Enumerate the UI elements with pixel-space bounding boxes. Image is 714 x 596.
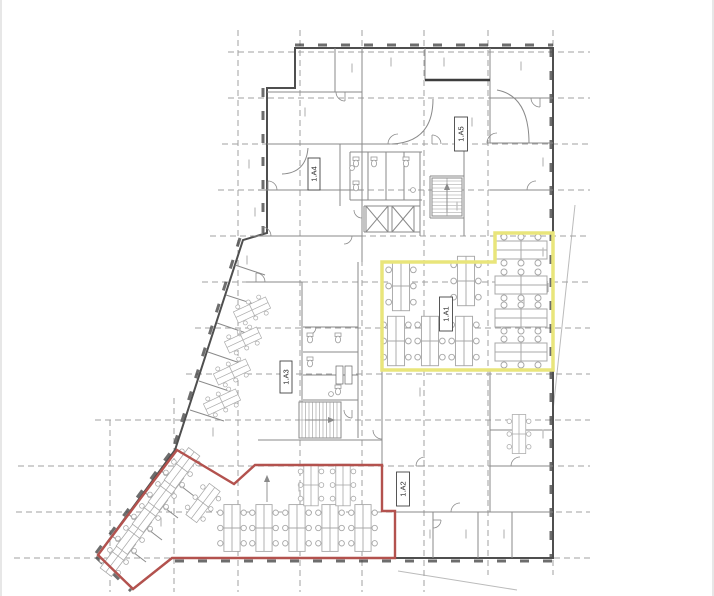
room-name-mark [254, 208, 255, 217]
room-name-mark [471, 118, 472, 127]
area-label-1a5: 1.A5 [455, 117, 468, 151]
area-label-1a4: 1.A4 [308, 158, 320, 190]
wc-fixture [307, 336, 312, 343]
chair [349, 510, 354, 515]
chair [518, 269, 524, 275]
chair [339, 525, 344, 530]
chair [501, 234, 507, 240]
desk-cluster [495, 269, 547, 301]
desk-cluster [218, 505, 247, 552]
chair [535, 269, 541, 275]
desk-cluster [298, 464, 324, 506]
room-name-mark [212, 428, 213, 437]
chair [349, 525, 354, 530]
room-name-mark [456, 202, 457, 211]
chair [501, 328, 507, 334]
wc-fixture [403, 160, 408, 167]
chair [415, 338, 421, 344]
chair [273, 541, 278, 546]
chair [319, 496, 324, 501]
door-tag-box [336, 366, 343, 384]
room-name-mark [298, 483, 299, 492]
desk-cluster [507, 415, 531, 454]
chair [330, 483, 335, 488]
chair [339, 510, 344, 515]
desk-cluster [283, 505, 312, 552]
elevator-shaft [392, 206, 414, 232]
chair [406, 322, 412, 328]
chair [474, 354, 480, 360]
chair [507, 432, 512, 437]
room-name-mark [304, 108, 305, 117]
chair [406, 354, 412, 360]
chair [535, 295, 541, 301]
room-name-mark [419, 388, 420, 397]
chair [241, 541, 246, 546]
chair [527, 432, 532, 437]
chair [501, 362, 507, 368]
chair [339, 541, 344, 546]
chair [501, 336, 507, 342]
chair [372, 541, 377, 546]
chair [507, 445, 512, 450]
chair [283, 510, 288, 515]
chair [476, 278, 482, 284]
chair [518, 234, 524, 240]
chair [415, 354, 421, 360]
chair [501, 295, 507, 301]
chair [372, 510, 377, 515]
wc-fixture [335, 336, 340, 343]
area-label-1a2: 1.A2 [397, 472, 410, 506]
chair [440, 338, 446, 344]
chair [283, 541, 288, 546]
room-name-mark [542, 158, 543, 167]
room-name-mark [248, 160, 249, 169]
chair [351, 483, 356, 488]
chair [535, 302, 541, 308]
chair [218, 525, 223, 530]
area-label-text: 1.A2 [399, 481, 408, 496]
chair [527, 419, 532, 424]
chair [501, 269, 507, 275]
chair [518, 336, 524, 342]
chair [351, 469, 356, 474]
room-name-mark [503, 530, 504, 539]
chair [319, 483, 324, 488]
chair [349, 541, 354, 546]
chair [535, 234, 541, 240]
chair [411, 283, 417, 289]
chair [386, 283, 392, 289]
chair [306, 541, 311, 546]
room-name-mark [523, 298, 524, 307]
chair [527, 445, 532, 450]
chair [449, 354, 455, 360]
chair [250, 525, 255, 530]
chair [386, 267, 392, 273]
chair [535, 362, 541, 368]
room-name-mark [542, 430, 543, 439]
chair [351, 496, 356, 501]
chair [241, 510, 246, 515]
chair [518, 302, 524, 308]
chair [316, 541, 321, 546]
chair [298, 496, 303, 501]
area-label-text: 1.A5 [457, 126, 466, 141]
chair [449, 338, 455, 344]
chair [476, 294, 482, 300]
desk-cluster [495, 336, 547, 368]
desk-cluster [381, 316, 411, 365]
chair [518, 295, 524, 301]
basin-fixture [411, 188, 416, 193]
chair [306, 510, 311, 515]
desk-cluster [316, 505, 345, 552]
desk-cluster [250, 505, 279, 552]
room-name-mark [160, 518, 161, 527]
wc-fixture [371, 160, 376, 167]
chair [218, 510, 223, 515]
page-edge-left [0, 0, 2, 596]
wc-fixture [307, 360, 312, 367]
desk-cluster [386, 261, 416, 310]
elevator-shaft [366, 206, 388, 232]
chair [440, 354, 446, 360]
desk-cluster [349, 505, 378, 552]
floor-plan-canvas: 1.A11.A21.A31.A41.A5 [0, 0, 714, 596]
chair [283, 525, 288, 530]
chair [298, 469, 303, 474]
area-label-1a1: 1.A1 [440, 297, 453, 331]
chair [250, 541, 255, 546]
room-name-mark [351, 64, 352, 73]
chair [518, 260, 524, 266]
wc-fixture [353, 160, 358, 167]
chair [330, 469, 335, 474]
chair [273, 525, 278, 530]
basin-fixture [329, 392, 334, 397]
chair [330, 496, 335, 501]
chair [518, 328, 524, 334]
area-label-text: 1.A3 [282, 369, 291, 384]
chair [535, 336, 541, 342]
chair [518, 362, 524, 368]
chair [415, 322, 421, 328]
chair [241, 525, 246, 530]
chair [535, 328, 541, 334]
chair [372, 525, 377, 530]
chair [474, 338, 480, 344]
room-name-mark [542, 248, 543, 257]
chair [316, 510, 321, 515]
chair [386, 299, 392, 305]
door-tag-box [345, 366, 352, 384]
chair [306, 525, 311, 530]
chair [501, 260, 507, 266]
basin-fixture [350, 166, 355, 171]
chair [316, 525, 321, 530]
chair [411, 267, 417, 273]
desk-cluster [495, 234, 547, 266]
chair [507, 419, 512, 424]
room-name-mark [239, 328, 240, 337]
area-label-text: 1.A4 [310, 166, 319, 181]
floor-plan-page: 1.A11.A21.A31.A41.A5 [0, 0, 714, 596]
chair [501, 302, 507, 308]
wc-fixture [353, 184, 358, 191]
chair [250, 510, 255, 515]
area-label-1a3: 1.A3 [280, 361, 292, 393]
wc-fixture [335, 388, 340, 395]
chair [411, 299, 417, 305]
room-name-mark [443, 58, 444, 67]
room-name-mark [429, 530, 430, 539]
chair [218, 541, 223, 546]
chair [273, 510, 278, 515]
chair [406, 338, 412, 344]
chair [535, 260, 541, 266]
chair [319, 469, 324, 474]
room-name-mark [520, 62, 521, 71]
chair [474, 322, 480, 328]
room-name-mark [390, 58, 391, 67]
desk-cluster [449, 316, 479, 365]
room-name-mark [465, 530, 466, 539]
room-name-mark [246, 256, 247, 265]
area-label-text: 1.A1 [442, 306, 451, 321]
desk-cluster [330, 464, 356, 506]
chair [451, 278, 457, 284]
desk-cluster [495, 302, 547, 334]
